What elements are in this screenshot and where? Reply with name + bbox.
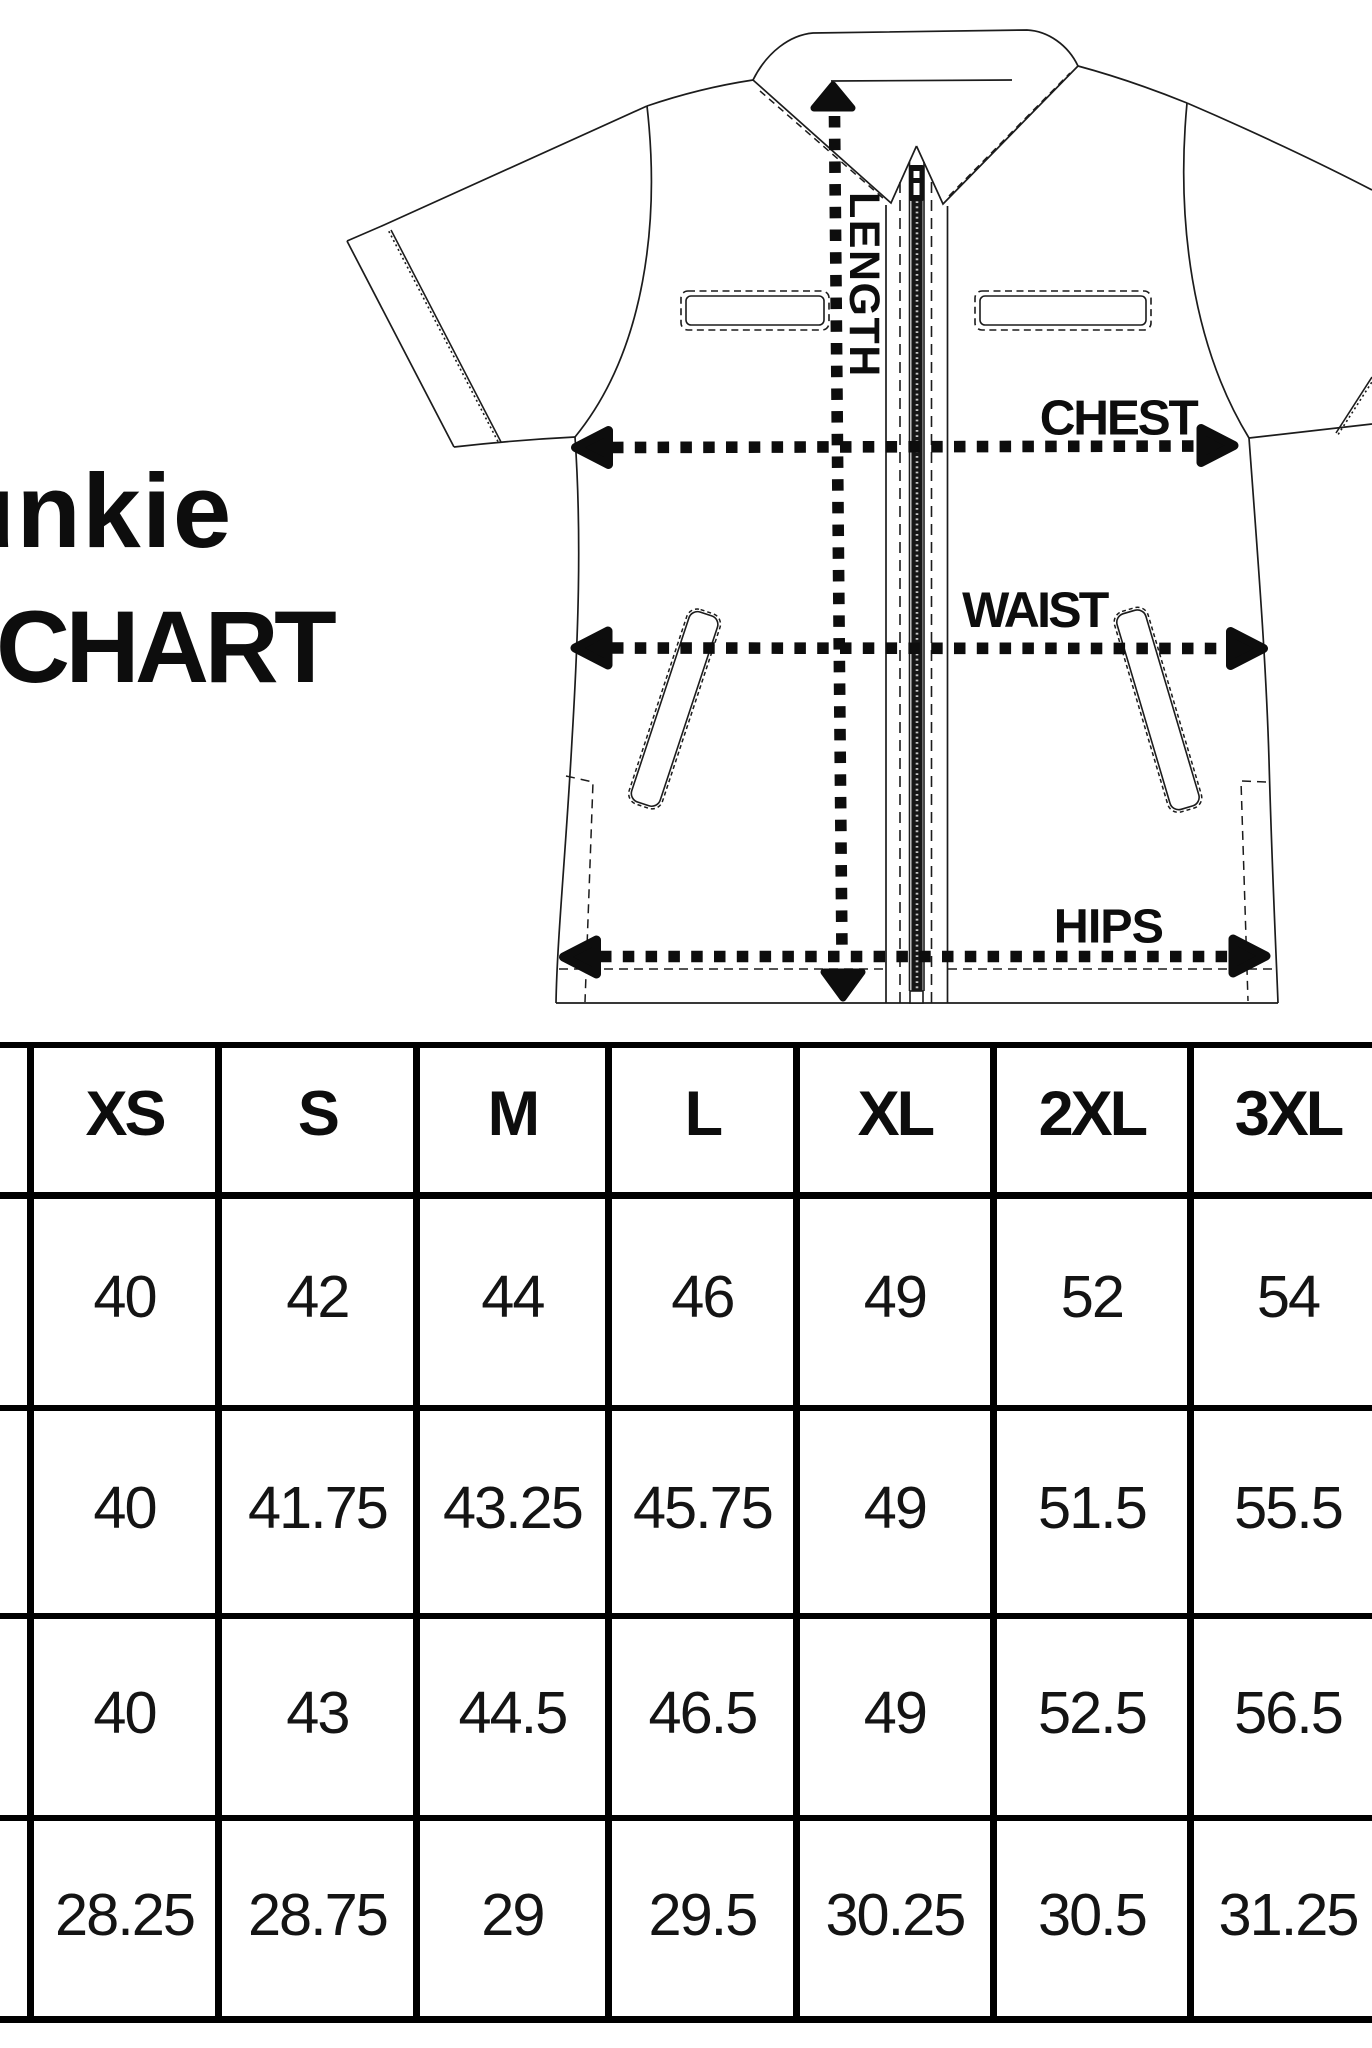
svg-text:LENGTH: LENGTH bbox=[840, 192, 888, 378]
svg-text:HIPS: HIPS bbox=[1054, 900, 1163, 954]
svg-text:CHEST: CHEST bbox=[1040, 391, 1199, 446]
svg-text:WAIST: WAIST bbox=[962, 582, 1109, 638]
